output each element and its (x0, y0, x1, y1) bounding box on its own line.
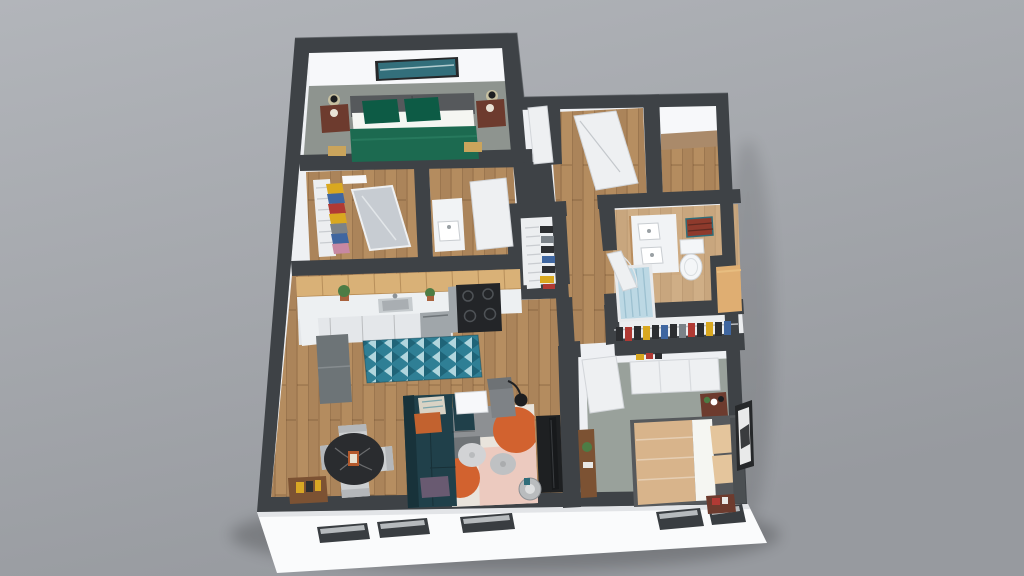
bed-green (350, 93, 479, 162)
nightstand-north (700, 392, 728, 418)
toilet (680, 239, 704, 280)
nightstand (320, 104, 350, 133)
fridge (316, 334, 352, 404)
stove (448, 283, 502, 333)
side-table (455, 391, 488, 414)
desk (578, 429, 597, 498)
media-console (536, 415, 563, 493)
vanity-door (470, 178, 513, 250)
wall-art-framed (735, 400, 754, 471)
bed-tan (630, 415, 746, 507)
floorplan-3d-viewport[interactable] (0, 0, 1024, 576)
red-wall-shelf (686, 217, 713, 237)
bedroom2-door (582, 356, 624, 413)
wall-lamp (330, 95, 337, 102)
dining-table (324, 433, 384, 485)
sideboard (288, 476, 328, 504)
wall-unit (342, 175, 367, 184)
kitchen-runner-rug (363, 335, 482, 383)
metal-side-table (519, 478, 541, 500)
foot-stool (328, 146, 346, 156)
nightstand-south (706, 494, 736, 514)
wall-art-teal (375, 57, 459, 81)
